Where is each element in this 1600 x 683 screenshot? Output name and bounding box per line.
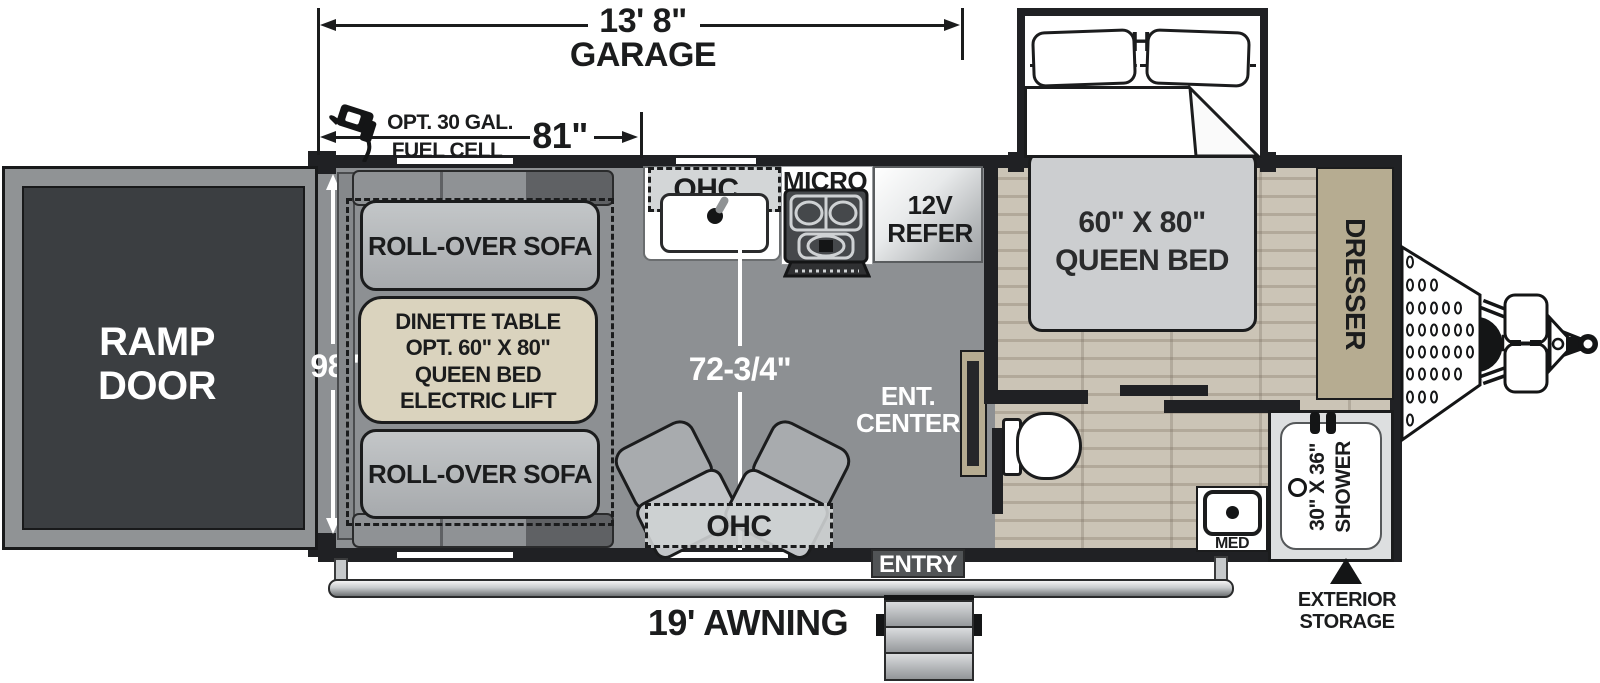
dim-garage-arrow-left xyxy=(320,19,336,31)
pillow-left xyxy=(1031,28,1137,88)
wall-bath-b xyxy=(1120,385,1208,396)
window-top-kitchen xyxy=(676,158,756,164)
shower-label: 30" X 36" SHOWER xyxy=(1305,441,1358,533)
window-bottom-garage xyxy=(397,552,513,558)
shower-label-2: SHOWER xyxy=(1331,441,1357,533)
blanket-fold xyxy=(1180,84,1266,162)
dim-81-line-r xyxy=(594,136,624,139)
dinette-line-1: DINETTE TABLE xyxy=(395,309,560,335)
fuel-pump-icon xyxy=(326,98,398,162)
ramp-door-label-2: DOOR xyxy=(98,366,216,406)
shower-label-1: 30" X 36" xyxy=(1305,441,1331,533)
step-3 xyxy=(884,652,974,681)
ent-center-label-1: ENT. xyxy=(881,383,935,409)
dim-72-shaft-top xyxy=(738,242,742,346)
dim-garage-line-l xyxy=(334,24,588,27)
med-faucet xyxy=(1226,506,1239,519)
propane-tank-1 xyxy=(1505,295,1547,343)
shower-head-icon-2 xyxy=(1326,412,1336,434)
step-rail-right xyxy=(974,614,982,636)
shower-head-icon xyxy=(1310,412,1320,434)
dim-garage-line-r xyxy=(700,24,946,27)
garage-ohc-bottom-label: OHC xyxy=(706,512,771,542)
step-2 xyxy=(884,626,974,655)
fuel-opt-label-1: OPT. 30 GAL. xyxy=(387,112,513,133)
dim-81: 81" xyxy=(532,118,588,154)
awning-label: 19' AWNING xyxy=(648,605,848,641)
dinette-line-2: OPT. 60" X 80" xyxy=(395,335,560,361)
fuel-opt-label-2: FUEL CELL xyxy=(392,140,503,161)
ramp-door-label-1: RAMP xyxy=(99,322,215,362)
exterior-storage-arrow xyxy=(1330,558,1362,584)
bed-label-1: 60" X 80" xyxy=(1078,208,1205,238)
refer-label-1: 12V xyxy=(908,192,953,218)
exterior-storage-label-2: STORAGE xyxy=(1299,612,1394,632)
step-rail-left xyxy=(876,614,884,636)
tv xyxy=(967,361,979,466)
dim-98-shaft-top xyxy=(331,189,335,344)
dim-81-arrow-right xyxy=(622,131,638,143)
ent-center-label-2: CENTER xyxy=(856,410,960,436)
propane-tank-2 xyxy=(1505,344,1547,392)
pillow-right xyxy=(1145,28,1251,88)
stove xyxy=(783,188,871,280)
entry-steps xyxy=(884,600,974,678)
roll-over-sofa-bottom-label: ROLL-OVER SOFA xyxy=(368,461,592,487)
dim-garage-arrow-right xyxy=(944,19,960,31)
dim-81-tick xyxy=(640,112,643,158)
dinette-line-4: ELECTRIC LIFT xyxy=(395,388,560,414)
awning-bar xyxy=(328,579,1234,598)
dinette-label: DINETTE TABLE OPT. 60" X 80" QUEEN BED E… xyxy=(395,309,560,415)
wall-bedroom-divider xyxy=(984,162,998,390)
toilet-bowl xyxy=(1016,412,1082,480)
step-1 xyxy=(884,600,974,629)
dim-72: 72-3/4" xyxy=(689,353,791,385)
exterior-storage-label-1: EXTERIOR xyxy=(1298,590,1396,610)
dinette-line-3: QUEEN BED xyxy=(395,362,560,388)
ent-center-cabinet xyxy=(960,350,987,477)
dim-72-arrow-up xyxy=(733,227,747,243)
wall-bath-a xyxy=(984,390,1088,404)
garage-label: GARAGE xyxy=(570,38,716,72)
med-label: MED xyxy=(1215,536,1249,552)
entry-label: ENTRY xyxy=(879,553,957,577)
bed-label-2: QUEEN BED xyxy=(1055,246,1229,276)
floorplan: RAMP DOOR 13' 8" GARAGE 81" OPT. 30 GAL.… xyxy=(0,0,1600,683)
dim-98-shaft-bottom xyxy=(331,390,335,520)
dim-garage-length: 13' 8" xyxy=(599,4,686,38)
hitch-assembly xyxy=(1400,240,1600,450)
roll-over-sofa-top-label: ROLL-OVER SOFA xyxy=(368,233,592,259)
dim-tick-right-garage xyxy=(961,8,964,60)
queen-bed-mattress xyxy=(1028,150,1257,332)
dresser-label: DRESSER xyxy=(1341,218,1369,350)
refer-label-2: REFER xyxy=(887,220,973,246)
